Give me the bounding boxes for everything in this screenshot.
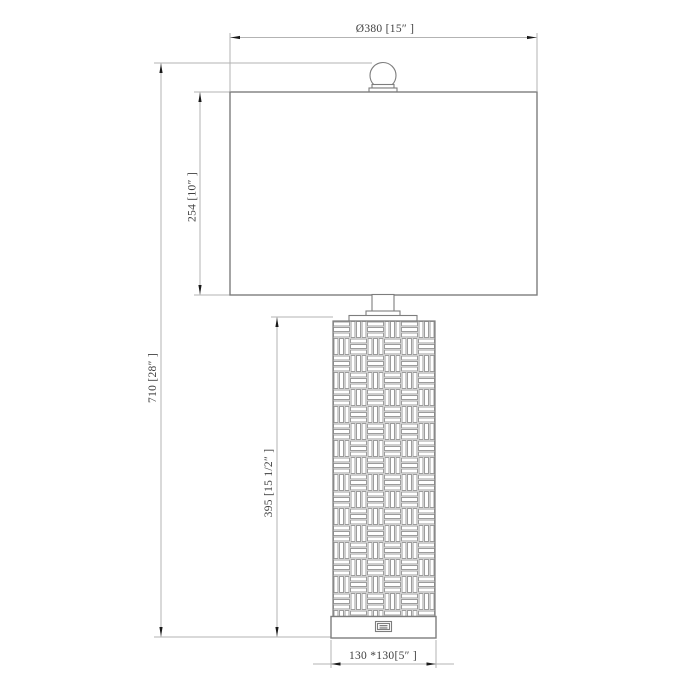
arrow-shade-height-top	[198, 93, 201, 103]
usb-port-pin2	[380, 627, 388, 628]
arrow-body-bottom	[275, 627, 278, 637]
lamp-neck	[372, 295, 394, 312]
lamp-object	[230, 63, 537, 639]
label-base-size: 130 *130[5″ ]	[349, 650, 417, 662]
arrow-shade-width-right	[527, 36, 537, 39]
arrow-base-left	[331, 662, 341, 665]
drawing-canvas: Ø380 [15″ ] 254 [10″ ] 710 [28″ ] 395 [1…	[0, 0, 700, 700]
arrow-shade-height-bottom	[198, 285, 201, 295]
label-total-height: 710 [28″ ]	[147, 353, 159, 403]
arrow-base-right	[427, 662, 437, 665]
arrow-total-bottom	[159, 627, 162, 637]
label-shade-width: Ø380 [15″ ]	[356, 23, 415, 35]
label-shade-height: 254 [10″ ]	[187, 172, 199, 222]
arrow-total-top	[159, 64, 162, 74]
lamp-shade	[230, 92, 537, 295]
body-top-plate	[349, 316, 417, 322]
arrow-body-top	[275, 318, 278, 328]
arrow-shade-width-left	[231, 36, 241, 39]
label-body-height: 395 [15 1/2″ ]	[263, 449, 275, 518]
lamp-body	[333, 321, 435, 617]
usb-port-icon	[376, 622, 392, 632]
usb-port-pin1	[380, 625, 388, 626]
lamp-dimension-drawing: Ø380 [15″ ] 254 [10″ ] 710 [28″ ] 395 [1…	[0, 0, 700, 700]
